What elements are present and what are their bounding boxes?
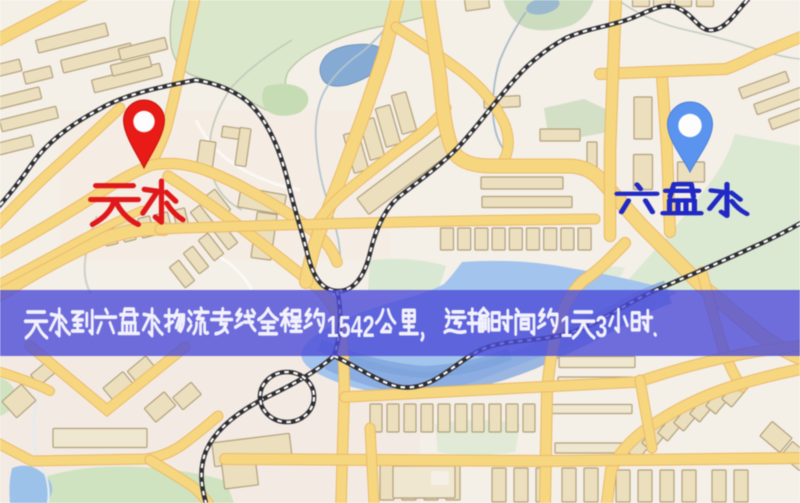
svg-text:1542: 1542 <box>327 309 375 344</box>
svg-text:3: 3 <box>595 309 607 344</box>
svg-text:1: 1 <box>560 309 572 344</box>
